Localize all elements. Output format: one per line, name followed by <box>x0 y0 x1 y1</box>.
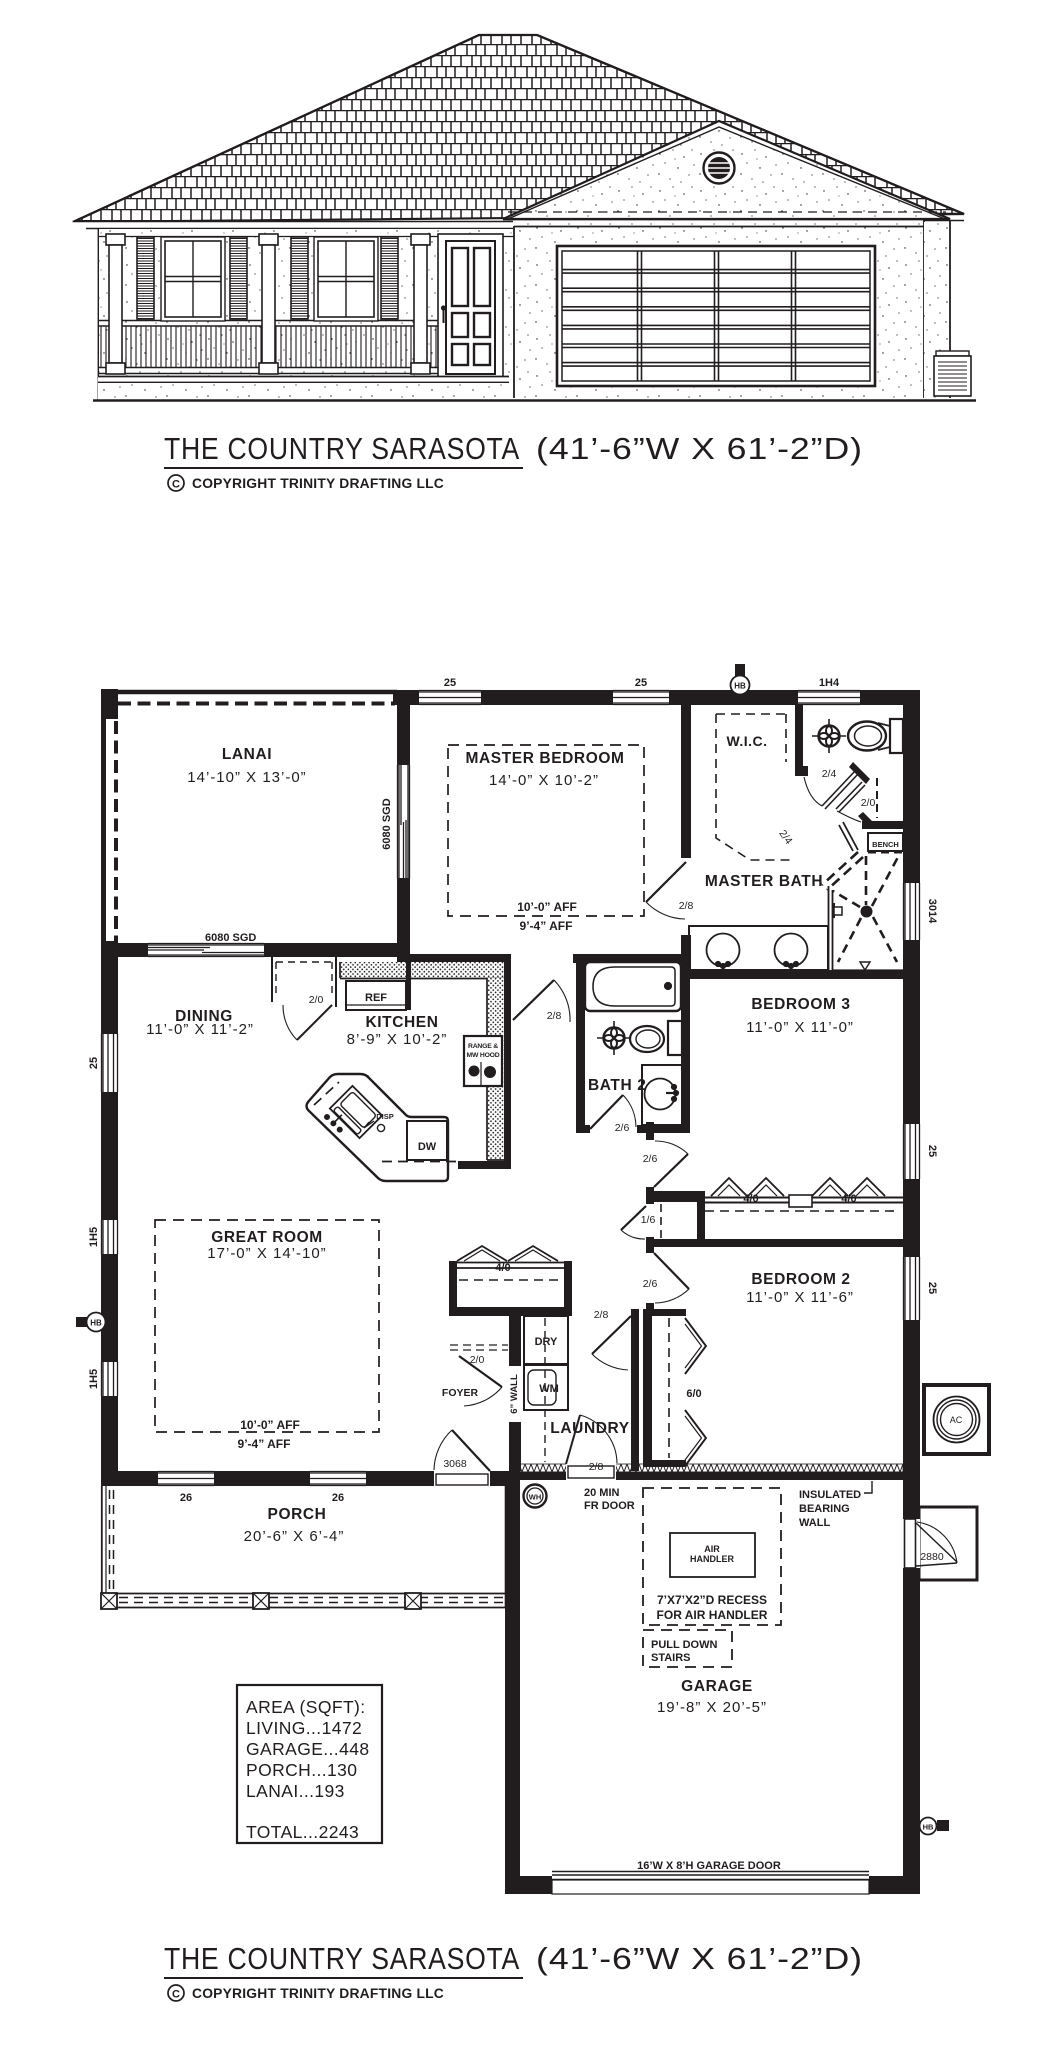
svg-text:MASTER BEDROOM: MASTER BEDROOM <box>465 750 624 767</box>
svg-text:BENCH: BENCH <box>872 840 899 849</box>
svg-text:HANDLER: HANDLER <box>690 1554 734 1564</box>
svg-text:DISP: DISP <box>376 1112 394 1121</box>
svg-text:25: 25 <box>635 677 647 689</box>
svg-text:HB: HB <box>90 1319 102 1328</box>
svg-text:2/0: 2/0 <box>861 797 876 809</box>
svg-text:WH: WH <box>529 1493 542 1502</box>
svg-text:COPYRIGHT TRINITY DRAFTING LLC: COPYRIGHT TRINITY DRAFTING LLC <box>192 476 444 491</box>
svg-text:WM: WM <box>539 1383 559 1395</box>
svg-text:AC: AC <box>950 1415 963 1425</box>
svg-text:DW: DW <box>418 1141 437 1153</box>
svg-text:11’-0” X 11’-2”: 11’-0” X 11’-2” <box>146 1021 254 1038</box>
svg-text:BEDROOM 3: BEDROOM 3 <box>751 996 850 1013</box>
svg-text:FOR AIR HANDLER: FOR AIR HANDLER <box>657 1608 768 1622</box>
svg-text:2/8: 2/8 <box>594 1309 609 1321</box>
svg-text:16’W X 8’H GARAGE DOOR: 16’W X 8’H GARAGE DOOR <box>637 1860 781 1872</box>
svg-text:W.I.C.: W.I.C. <box>726 733 767 749</box>
svg-text:COPYRIGHT TRINITY DRAFTING LLC: COPYRIGHT TRINITY DRAFTING LLC <box>192 1986 444 2001</box>
svg-text:THE COUNTRY SARASOTA: THE COUNTRY SARASOTA <box>164 432 520 466</box>
svg-text:THE COUNTRY SARASOTA: THE COUNTRY SARASOTA <box>164 1942 520 1976</box>
svg-text:RANGE &: RANGE & <box>468 1043 498 1050</box>
svg-text:14’-0” X 10’-2”: 14’-0” X 10’-2” <box>489 772 599 789</box>
svg-text:GREAT ROOM: GREAT ROOM <box>211 1229 323 1246</box>
svg-text:BATH 2: BATH 2 <box>588 1077 646 1094</box>
svg-text:PULL DOWN: PULL DOWN <box>651 1639 717 1651</box>
svg-text:C: C <box>172 479 180 491</box>
svg-text:AIR: AIR <box>704 1544 720 1554</box>
svg-text:FOYER: FOYER <box>442 1387 479 1399</box>
svg-text:25: 25 <box>444 677 456 689</box>
svg-text:PORCH...130: PORCH...130 <box>246 1760 357 1780</box>
svg-text:1H4: 1H4 <box>819 677 840 689</box>
svg-text:STAIRS: STAIRS <box>651 1652 691 1664</box>
svg-text:25: 25 <box>926 1145 938 1157</box>
svg-text:6” WALL: 6” WALL <box>509 1374 520 1414</box>
svg-text:2/0: 2/0 <box>309 994 324 1006</box>
svg-text:C: C <box>172 1989 180 2001</box>
svg-text:25: 25 <box>88 1057 100 1069</box>
svg-text:7’X7’X2”D RECESS: 7’X7’X2”D RECESS <box>657 1593 767 1607</box>
svg-text:4/0: 4/0 <box>743 1193 758 1205</box>
svg-text:26: 26 <box>180 1492 192 1504</box>
svg-text:2/6: 2/6 <box>643 1153 658 1165</box>
svg-text:3014: 3014 <box>926 899 938 924</box>
svg-text:2/8: 2/8 <box>589 1461 604 1473</box>
svg-text:GARAGE: GARAGE <box>681 1678 753 1695</box>
svg-text:2/8: 2/8 <box>679 900 694 912</box>
svg-text:PORCH: PORCH <box>268 1506 327 1523</box>
svg-text:8’-9” X 10’-2”: 8’-9” X 10’-2” <box>347 1031 448 1048</box>
svg-text:25: 25 <box>926 1282 938 1294</box>
svg-text:20 MIN: 20 MIN <box>584 1487 620 1499</box>
svg-text:14’-10” X 13’-0”: 14’-10” X 13’-0” <box>187 769 306 786</box>
svg-text:BEDROOM 2: BEDROOM 2 <box>751 1271 850 1288</box>
svg-text:3068: 3068 <box>443 1458 467 1470</box>
svg-text:2/6: 2/6 <box>643 1278 658 1290</box>
svg-text:WALL: WALL <box>799 1517 830 1529</box>
svg-text:FR DOOR: FR DOOR <box>584 1500 635 1512</box>
svg-text:KITCHEN: KITCHEN <box>365 1014 438 1031</box>
svg-text:9’-4” AFF: 9’-4” AFF <box>238 1437 291 1451</box>
svg-text:(41’-6”W X 61’-2”D): (41’-6”W X 61’-2”D) <box>536 432 863 466</box>
svg-text:INSULATED: INSULATED <box>799 1489 861 1501</box>
svg-text:LANAI...193: LANAI...193 <box>246 1781 345 1801</box>
svg-text:9’-4” AFF: 9’-4” AFF <box>520 919 573 933</box>
svg-text:20’-6” X 6’-4”: 20’-6” X 6’-4” <box>244 1528 345 1545</box>
svg-text:(41’-6”W X 61’-2”D): (41’-6”W X 61’-2”D) <box>536 1942 863 1976</box>
svg-text:MW HOOD: MW HOOD <box>467 1052 500 1059</box>
svg-text:1H5: 1H5 <box>88 1227 100 1247</box>
svg-text:MASTER BATH: MASTER BATH <box>705 873 823 890</box>
svg-text:LAUNDRY: LAUNDRY <box>550 1420 629 1437</box>
svg-text:DRY: DRY <box>535 1336 558 1348</box>
svg-text:REF: REF <box>365 992 387 1004</box>
svg-text:1H5: 1H5 <box>88 1369 100 1389</box>
svg-text:GARAGE...448: GARAGE...448 <box>246 1739 369 1759</box>
svg-text:6080 SGD: 6080 SGD <box>381 798 393 849</box>
svg-text:6/0: 6/0 <box>686 1388 701 1400</box>
svg-text:26: 26 <box>332 1492 344 1504</box>
svg-text:4/0: 4/0 <box>841 1193 856 1205</box>
svg-text:11’-0” X 11’-6”: 11’-0” X 11’-6” <box>746 1289 854 1306</box>
svg-text:TOTAL...2243: TOTAL...2243 <box>246 1822 359 1842</box>
svg-text:HB: HB <box>923 1823 934 1832</box>
svg-text:LANAI: LANAI <box>222 746 272 763</box>
svg-text:11’-0” X 11’-0”: 11’-0” X 11’-0” <box>746 1019 854 1036</box>
svg-text:AREA (SQFT):: AREA (SQFT): <box>246 1697 366 1717</box>
svg-text:2/6: 2/6 <box>615 1122 630 1134</box>
svg-text:4/0: 4/0 <box>495 1262 510 1274</box>
svg-text:2880: 2880 <box>920 1551 944 1563</box>
svg-text:2/0: 2/0 <box>470 1354 485 1366</box>
svg-text:1/6: 1/6 <box>641 1214 656 1226</box>
svg-text:LIVING...1472: LIVING...1472 <box>246 1718 362 1738</box>
svg-text:10’-0” AFF: 10’-0” AFF <box>240 1418 300 1432</box>
svg-text:BEARING: BEARING <box>799 1503 850 1515</box>
svg-text:6080 SGD: 6080 SGD <box>205 932 256 944</box>
svg-text:10’-0” AFF: 10’-0” AFF <box>517 900 577 914</box>
svg-text:2/4: 2/4 <box>822 768 837 780</box>
svg-text:HB: HB <box>734 682 746 691</box>
svg-text:17’-0” X 14’-10”: 17’-0” X 14’-10” <box>207 1245 326 1262</box>
svg-text:2/8: 2/8 <box>547 1010 562 1022</box>
svg-text:19’-8” X 20’-5”: 19’-8” X 20’-5” <box>657 1699 767 1716</box>
